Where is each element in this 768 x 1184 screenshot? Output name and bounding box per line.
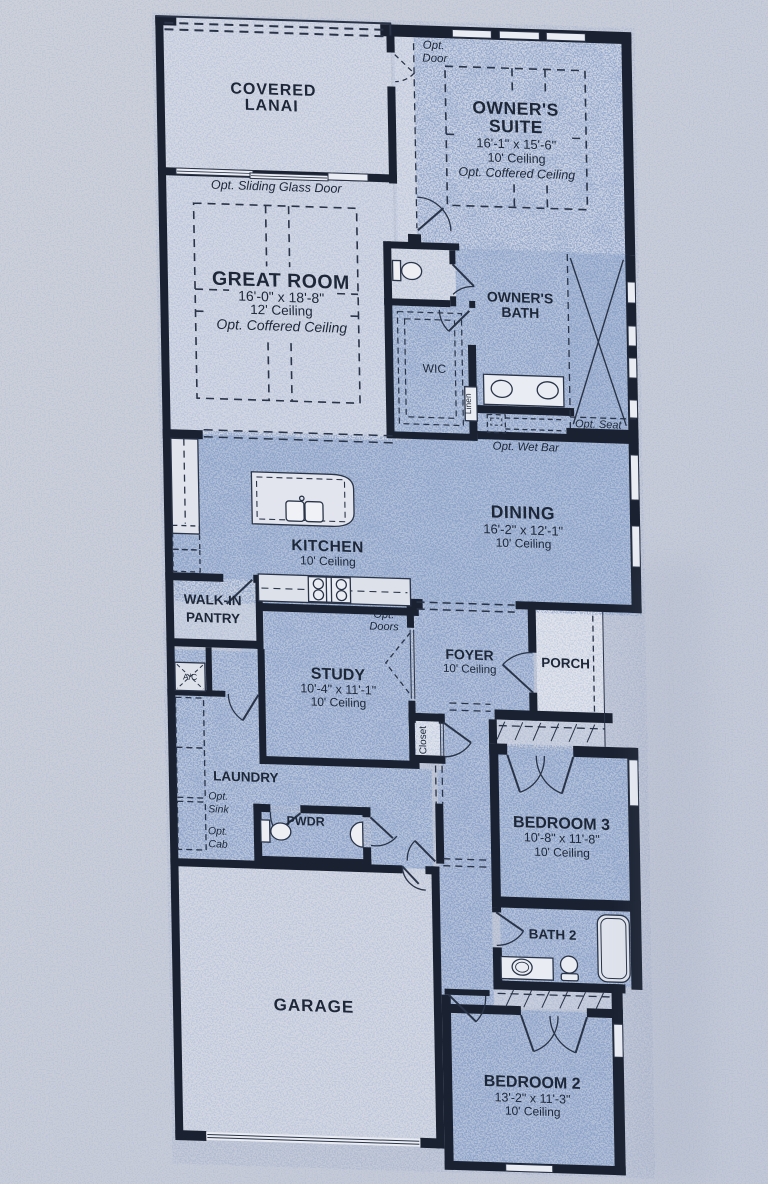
- svg-text:Sink: Sink: [208, 803, 229, 816]
- svg-text:WALK-IN: WALK-IN: [184, 592, 242, 609]
- svg-text:Linen: Linen: [463, 393, 473, 414]
- svg-text:BATH 2: BATH 2: [529, 926, 577, 943]
- svg-text:SUITE: SUITE: [489, 116, 543, 138]
- svg-text:Door: Door: [422, 52, 448, 65]
- svg-text:10' Ceiling: 10' Ceiling: [505, 1104, 561, 1120]
- svg-text:PWDR: PWDR: [286, 814, 324, 829]
- svg-text:FOYER: FOYER: [445, 646, 494, 664]
- svg-text:BATH: BATH: [501, 304, 539, 321]
- svg-text:Opt.: Opt.: [208, 790, 228, 803]
- svg-text:WIC: WIC: [423, 361, 447, 376]
- svg-text:GARAGE: GARAGE: [273, 995, 354, 1017]
- svg-text:A/C: A/C: [183, 671, 197, 681]
- svg-text:Opt.: Opt.: [373, 609, 394, 622]
- svg-text:Cab: Cab: [208, 838, 228, 851]
- svg-text:LAUNDRY: LAUNDRY: [213, 768, 279, 785]
- svg-text:10' Ceiling: 10' Ceiling: [496, 536, 552, 552]
- svg-text:Opt.: Opt.: [208, 825, 228, 838]
- svg-text:LANAI: LANAI: [245, 97, 299, 116]
- svg-text:10' Ceiling: 10' Ceiling: [534, 845, 590, 861]
- svg-text:Doors: Doors: [369, 620, 399, 633]
- svg-text:10' Ceiling: 10' Ceiling: [300, 553, 356, 569]
- svg-text:Opt.: Opt.: [423, 40, 445, 53]
- svg-text:Opt. Seat: Opt. Seat: [575, 418, 623, 432]
- svg-text:10' Ceiling: 10' Ceiling: [487, 151, 545, 167]
- svg-text:10' Ceiling: 10' Ceiling: [311, 695, 367, 711]
- svg-text:Closet: Closet: [418, 726, 430, 755]
- svg-text:DINING: DINING: [491, 501, 556, 523]
- svg-text:PORCH: PORCH: [541, 655, 590, 672]
- svg-text:PANTRY: PANTRY: [186, 610, 240, 627]
- svg-text:Opt. Wet Bar: Opt. Wet Bar: [493, 441, 561, 455]
- svg-text:10' Ceiling: 10' Ceiling: [443, 663, 497, 677]
